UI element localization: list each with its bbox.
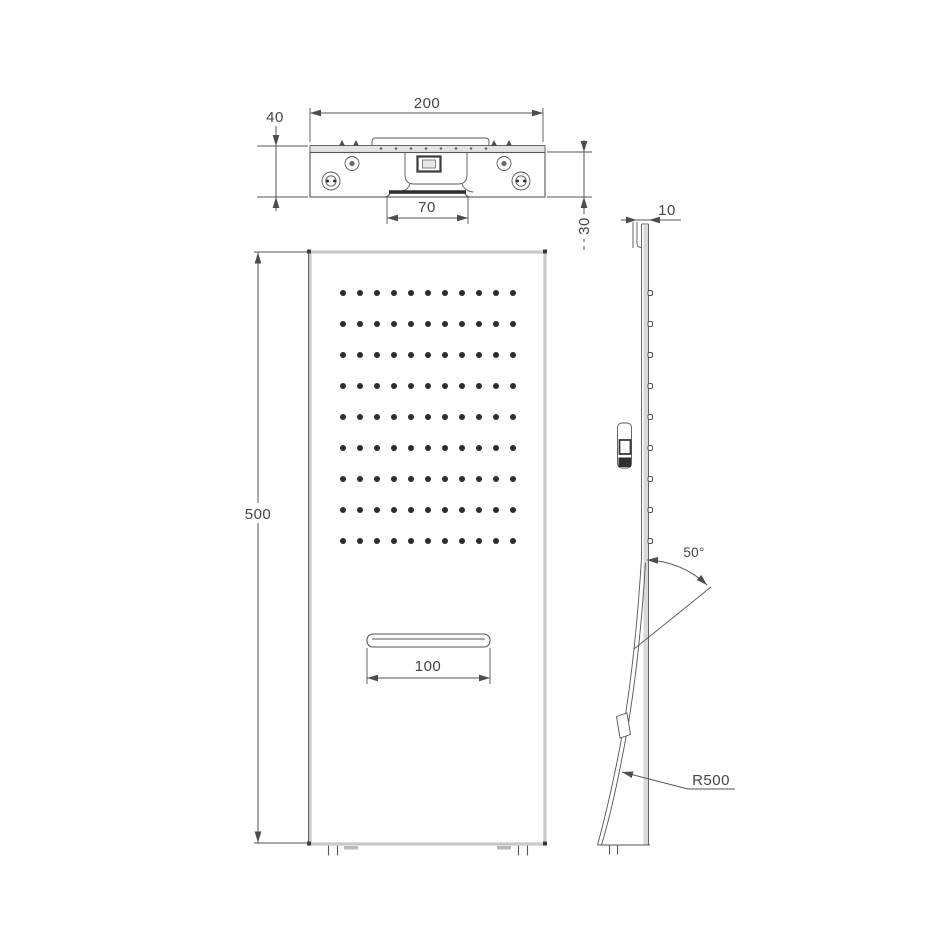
dim-top-depth: 40 bbox=[257, 109, 308, 211]
wall-stud bbox=[648, 322, 653, 327]
spray-hole bbox=[408, 290, 414, 296]
dim-panel-height: 500 bbox=[241, 252, 309, 843]
panel-feet bbox=[329, 846, 528, 855]
spray-hole bbox=[459, 352, 465, 358]
spray-hole bbox=[391, 352, 397, 358]
spray-hole bbox=[391, 507, 397, 513]
screw-right-outer bbox=[512, 172, 530, 190]
spray-hole bbox=[340, 383, 346, 389]
dim-body-depth-label: 30 bbox=[576, 217, 593, 235]
dim-top-width-label: 200 bbox=[414, 95, 441, 112]
screw-right-inner bbox=[497, 157, 511, 171]
spray-hole bbox=[408, 383, 414, 389]
spray-hole bbox=[442, 476, 448, 482]
wall-stud bbox=[648, 291, 653, 296]
spray-hole bbox=[442, 445, 448, 451]
spray-hole bbox=[493, 383, 499, 389]
spray-hole bbox=[357, 352, 363, 358]
spray-hole bbox=[476, 290, 482, 296]
spray-hole bbox=[476, 414, 482, 420]
spray-hole bbox=[408, 352, 414, 358]
top-view: 200 40 30 70 bbox=[257, 95, 593, 250]
spray-hole bbox=[374, 445, 380, 451]
dim-outlet-width-label: 70 bbox=[418, 199, 436, 216]
wall-stud bbox=[648, 508, 653, 513]
spray-hole bbox=[374, 414, 380, 420]
spray-hole bbox=[408, 476, 414, 482]
spray-hole bbox=[510, 414, 516, 420]
spray-hole bbox=[357, 445, 363, 451]
spray-hole bbox=[442, 538, 448, 544]
spray-hole bbox=[374, 507, 380, 513]
spray-hole bbox=[442, 321, 448, 327]
spray-hole bbox=[391, 383, 397, 389]
wall-stud bbox=[648, 446, 653, 451]
spray-hole bbox=[374, 538, 380, 544]
spray-hole bbox=[425, 507, 431, 513]
spray-hole bbox=[425, 414, 431, 420]
dim-panel-thickness-label: 10 bbox=[658, 202, 676, 219]
wall-stud bbox=[648, 353, 653, 358]
spray-hole bbox=[459, 538, 465, 544]
spray-hole bbox=[442, 290, 448, 296]
spray-hole bbox=[510, 476, 516, 482]
inlet-dot bbox=[455, 147, 458, 150]
spray-hole bbox=[374, 290, 380, 296]
spray-hole bbox=[493, 445, 499, 451]
front-view: 500 100 bbox=[241, 250, 547, 856]
spray-hole bbox=[425, 290, 431, 296]
panel-face bbox=[310, 252, 545, 844]
inlet-dot bbox=[425, 147, 428, 150]
spray-hole bbox=[459, 321, 465, 327]
spray-hole bbox=[340, 290, 346, 296]
spray-hole bbox=[476, 321, 482, 327]
spray-hole bbox=[391, 290, 397, 296]
wall-stud bbox=[648, 477, 653, 482]
spray-hole bbox=[391, 445, 397, 451]
side-bracket bbox=[618, 423, 632, 468]
wall-stud bbox=[648, 384, 653, 389]
side-view: 10 50° R500 bbox=[598, 202, 736, 854]
spray-hole bbox=[408, 507, 414, 513]
inlet-dot bbox=[440, 147, 443, 150]
spray-hole bbox=[425, 352, 431, 358]
side-slot-outlet bbox=[617, 713, 631, 738]
bend-radius-label: R500 bbox=[692, 772, 730, 789]
spray-hole bbox=[442, 383, 448, 389]
spray-hole bbox=[340, 507, 346, 513]
spray-hole bbox=[357, 507, 363, 513]
spray-hole bbox=[476, 445, 482, 451]
spray-hole bbox=[340, 321, 346, 327]
spray-hole bbox=[425, 538, 431, 544]
spray-hole bbox=[374, 476, 380, 482]
inlet-dot bbox=[395, 147, 398, 150]
spray-hole bbox=[493, 352, 499, 358]
spray-hole bbox=[510, 507, 516, 513]
spray-hole bbox=[340, 476, 346, 482]
panel-edge-strip bbox=[310, 146, 545, 153]
bend-radius-annotation: R500 bbox=[622, 772, 735, 789]
spray-hole bbox=[459, 476, 465, 482]
inlet-dot bbox=[410, 147, 413, 150]
spray-hole bbox=[493, 290, 499, 296]
dim-top-width: 200 bbox=[310, 95, 543, 142]
inlet-dot bbox=[485, 147, 488, 150]
spray-hole bbox=[408, 321, 414, 327]
spray-hole bbox=[340, 414, 346, 420]
mount-hook bbox=[633, 222, 642, 248]
spray-hole bbox=[391, 414, 397, 420]
spray-hole bbox=[493, 321, 499, 327]
spray-hole bbox=[408, 445, 414, 451]
spray-hole bbox=[476, 538, 482, 544]
dim-slot-width-label: 100 bbox=[415, 658, 442, 675]
spray-hole bbox=[510, 383, 516, 389]
wall-stud bbox=[648, 415, 653, 420]
spray-hole bbox=[459, 445, 465, 451]
spray-hole bbox=[340, 445, 346, 451]
dim-outlet-width: 70 bbox=[387, 196, 468, 224]
spray-hole bbox=[442, 507, 448, 513]
spray-hole bbox=[476, 352, 482, 358]
spray-hole bbox=[408, 414, 414, 420]
spray-hole bbox=[459, 290, 465, 296]
drawing-canvas: 200 40 30 70 bbox=[0, 0, 950, 950]
spray-hole bbox=[425, 445, 431, 451]
spray-hole bbox=[459, 383, 465, 389]
spray-hole bbox=[476, 476, 482, 482]
spray-hole bbox=[510, 321, 516, 327]
spray-hole bbox=[391, 321, 397, 327]
inlet-dot bbox=[380, 147, 383, 150]
spray-hole bbox=[493, 507, 499, 513]
spray-angle-label: 50° bbox=[683, 545, 704, 560]
screw-left-inner bbox=[345, 157, 359, 171]
spray-hole bbox=[357, 290, 363, 296]
dim-top-depth-label: 40 bbox=[266, 109, 284, 126]
spray-hole bbox=[340, 538, 346, 544]
spray-hole bbox=[510, 290, 516, 296]
panel-profile-fill bbox=[644, 225, 649, 845]
spray-hole bbox=[442, 352, 448, 358]
spray-hole bbox=[357, 383, 363, 389]
screw-left-outer bbox=[322, 172, 340, 190]
spray-hole bbox=[476, 507, 482, 513]
spray-hole bbox=[442, 414, 448, 420]
spray-hole bbox=[459, 507, 465, 513]
spray-hole bbox=[493, 414, 499, 420]
spray-hole bbox=[459, 414, 465, 420]
spray-hole bbox=[374, 321, 380, 327]
spray-hole bbox=[374, 383, 380, 389]
side-feet bbox=[610, 846, 618, 854]
spray-hole bbox=[476, 383, 482, 389]
spray-hole bbox=[425, 321, 431, 327]
spray-hole bbox=[510, 352, 516, 358]
spray-hole bbox=[391, 476, 397, 482]
spray-hole bbox=[357, 538, 363, 544]
panel-bend-outer bbox=[598, 558, 642, 845]
spray-hole bbox=[340, 352, 346, 358]
spray-hole bbox=[374, 352, 380, 358]
spray-hole bbox=[425, 383, 431, 389]
spray-hole bbox=[425, 476, 431, 482]
inlet-dot bbox=[470, 147, 473, 150]
spray-hole bbox=[408, 538, 414, 544]
dim-panel-height-label: 500 bbox=[245, 506, 272, 523]
technical-drawing: 200 40 30 70 bbox=[0, 0, 950, 950]
spray-hole bbox=[357, 321, 363, 327]
spray-hole bbox=[391, 538, 397, 544]
spray-hole bbox=[357, 476, 363, 482]
dim-body-depth: 30 bbox=[547, 140, 593, 250]
spray-hole bbox=[510, 445, 516, 451]
spray-hole bbox=[493, 476, 499, 482]
spray-hole bbox=[493, 538, 499, 544]
waterfall-slot bbox=[367, 634, 490, 647]
dim-panel-thickness: 10 bbox=[621, 202, 681, 220]
wall-stud bbox=[648, 539, 653, 544]
spray-hole bbox=[357, 414, 363, 420]
spray-hole bbox=[510, 538, 516, 544]
